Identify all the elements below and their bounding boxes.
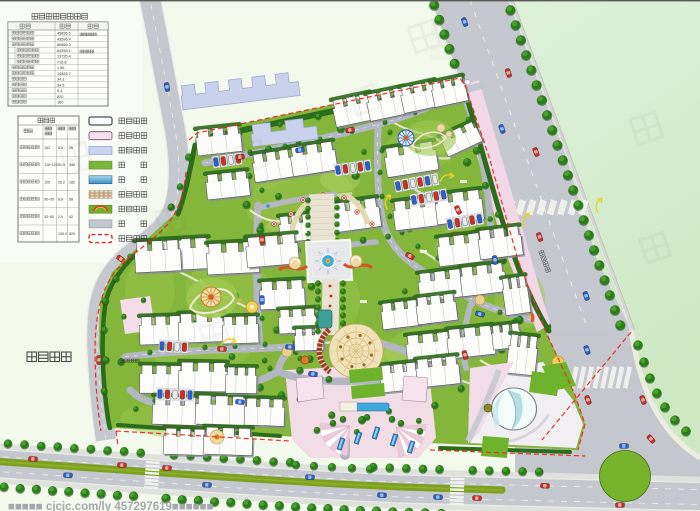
svg-text:820: 820 [69, 232, 75, 236]
svg-text:5.4: 5.4 [57, 89, 62, 93]
svg-text:105: 105 [45, 180, 51, 184]
svg-text:13735.4: 13735.4 [57, 55, 71, 59]
svg-text:356: 356 [69, 163, 75, 167]
svg-text:52~60: 52~60 [45, 215, 55, 219]
svg-text:64255.1: 64255.1 [57, 49, 71, 53]
svg-text:8.8: 8.8 [58, 198, 63, 202]
svg-text:80865.3: 80865.3 [57, 43, 71, 47]
svg-text:45895.5: 45895.5 [57, 32, 71, 36]
svg-text:160: 160 [57, 101, 63, 105]
svg-text:34.5: 34.5 [57, 83, 64, 87]
svg-text:26.2: 26.2 [58, 180, 65, 184]
svg-text:43596.4: 43596.4 [57, 37, 71, 41]
svg-text:58: 58 [69, 198, 73, 202]
svg-text:820: 820 [57, 95, 63, 99]
svg-text:34.1: 34.1 [57, 78, 64, 82]
svg-text:42: 42 [69, 215, 73, 219]
svg-text:80~95: 80~95 [45, 198, 55, 202]
svg-text:182: 182 [69, 180, 75, 184]
svg-text:14826.7: 14826.7 [57, 72, 71, 76]
svg-text:2.9: 2.9 [58, 215, 63, 219]
svg-text:716.8: 716.8 [57, 60, 67, 64]
svg-text:1.86: 1.86 [57, 66, 64, 70]
svg-text:116~128: 116~128 [45, 163, 58, 167]
svg-text:■■■■■ cjcjc.com/ly 457297619■■: ■■■■■ cjcjc.com/ly 457297619■■■■■■ [8, 501, 214, 511]
svg-text:142: 142 [45, 146, 51, 150]
svg-text:100.0: 100.0 [58, 232, 67, 236]
